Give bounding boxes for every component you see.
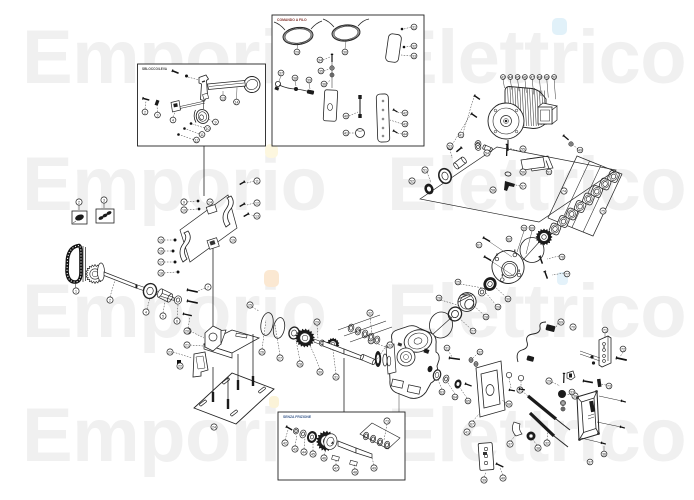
svg-text:49: 49 (372, 466, 376, 470)
svg-text:29: 29 (295, 50, 299, 54)
svg-text:39: 39 (307, 78, 311, 82)
svg-text:48: 48 (353, 470, 357, 474)
svg-text:34: 34 (318, 58, 322, 62)
svg-text:29: 29 (315, 320, 319, 324)
svg-text:75: 75 (601, 209, 605, 213)
svg-text:68: 68 (507, 402, 511, 406)
svg-text:76: 76 (560, 255, 564, 259)
svg-text:26: 26 (437, 296, 441, 300)
svg-text:17: 17 (159, 260, 163, 264)
svg-text:41: 41 (465, 430, 469, 434)
svg-text:2: 2 (144, 110, 146, 114)
svg-text:9: 9 (215, 120, 217, 124)
svg-text:12: 12 (255, 201, 259, 205)
svg-text:62: 62 (507, 237, 511, 241)
svg-text:39: 39 (482, 478, 486, 482)
svg-text:49: 49 (545, 75, 549, 79)
svg-text:61: 61 (477, 243, 481, 247)
svg-text:43: 43 (501, 75, 505, 79)
svg-text:13: 13 (255, 214, 259, 218)
svg-text:47: 47 (334, 466, 338, 470)
svg-text:45: 45 (516, 75, 520, 79)
svg-text:22: 22 (178, 364, 182, 368)
svg-text:25: 25 (248, 303, 252, 307)
svg-text:27: 27 (278, 356, 282, 360)
svg-text:30: 30 (343, 50, 347, 54)
svg-text:32: 32 (412, 44, 416, 48)
svg-text:43: 43 (403, 122, 407, 126)
svg-text:16: 16 (159, 249, 163, 253)
svg-text:37: 37 (588, 460, 592, 464)
svg-text:71: 71 (603, 328, 607, 332)
svg-text:60: 60 (530, 226, 534, 230)
svg-text:2: 2 (78, 200, 80, 204)
svg-text:73: 73 (607, 384, 611, 388)
svg-text:51: 51 (423, 168, 427, 172)
svg-text:Emporio Elettrico: Emporio Elettrico (22, 142, 686, 227)
svg-text:40: 40 (501, 476, 505, 480)
svg-text:25: 25 (456, 280, 460, 284)
svg-text:31: 31 (445, 346, 449, 350)
svg-text:48: 48 (538, 75, 542, 79)
svg-text:54: 54 (485, 151, 489, 155)
svg-text:77: 77 (565, 272, 569, 276)
svg-text:9: 9 (183, 200, 185, 204)
svg-text:35: 35 (319, 69, 323, 73)
svg-text:63: 63 (440, 390, 444, 394)
svg-text:32: 32 (545, 441, 549, 445)
svg-text:59: 59 (522, 226, 526, 230)
svg-text:14: 14 (235, 100, 239, 104)
svg-text:41: 41 (344, 131, 348, 135)
svg-text:4: 4 (145, 310, 147, 314)
svg-text:10: 10 (182, 208, 186, 212)
svg-text:58: 58 (491, 188, 495, 192)
svg-text:21: 21 (185, 343, 189, 347)
svg-text:41: 41 (459, 133, 463, 137)
svg-text:11: 11 (255, 179, 259, 183)
svg-text:32: 32 (478, 350, 482, 354)
svg-text:2: 2 (109, 298, 111, 302)
svg-text:5: 5 (162, 314, 164, 318)
svg-text:26: 26 (260, 350, 264, 354)
svg-text:65: 65 (466, 399, 470, 403)
svg-text:51: 51 (547, 170, 551, 174)
svg-text:72: 72 (621, 347, 625, 351)
svg-text:12: 12 (195, 138, 199, 142)
svg-text:28: 28 (484, 315, 488, 319)
svg-text:3: 3 (157, 113, 159, 117)
svg-text:44: 44 (302, 450, 306, 454)
svg-text:32: 32 (368, 311, 372, 315)
svg-text:15: 15 (159, 238, 163, 242)
svg-text:13: 13 (221, 96, 225, 100)
svg-text:31: 31 (334, 375, 338, 379)
svg-text:33: 33 (388, 343, 392, 347)
svg-text:4: 4 (172, 118, 174, 122)
svg-text:70: 70 (571, 325, 575, 329)
svg-text:52: 52 (410, 179, 414, 183)
svg-text:1: 1 (75, 289, 77, 293)
svg-text:42: 42 (403, 111, 407, 115)
svg-text:14: 14 (208, 200, 212, 204)
svg-text:COMANDO A FILO: COMANDO A FILO (277, 18, 307, 22)
svg-text:11: 11 (200, 133, 204, 137)
svg-text:56: 56 (521, 170, 525, 174)
svg-text:20: 20 (185, 329, 189, 333)
svg-text:28: 28 (298, 362, 302, 366)
svg-text:53: 53 (448, 144, 452, 148)
svg-text:33: 33 (570, 390, 574, 394)
svg-text:46: 46 (322, 456, 326, 460)
svg-text:55: 55 (521, 147, 525, 151)
svg-text:10: 10 (206, 127, 210, 131)
svg-text:49: 49 (578, 148, 582, 152)
svg-text:57: 57 (521, 184, 525, 188)
svg-text:44: 44 (403, 132, 407, 136)
svg-text:18: 18 (159, 271, 163, 275)
svg-text:37: 37 (279, 71, 283, 75)
svg-text:SENZA FRIZIONE: SENZA FRIZIONE (283, 415, 312, 419)
svg-text:SBLOCCO/LEVA: SBLOCCO/LEVA (142, 67, 168, 71)
svg-text:38: 38 (536, 446, 540, 450)
svg-text:45: 45 (311, 452, 315, 456)
svg-text:7: 7 (207, 285, 209, 289)
svg-text:47: 47 (530, 75, 534, 79)
svg-text:3: 3 (103, 198, 105, 202)
svg-text:31: 31 (412, 25, 416, 29)
svg-text:43: 43 (293, 447, 297, 451)
svg-text:36: 36 (602, 452, 606, 456)
svg-text:67: 67 (470, 422, 474, 426)
svg-text:23: 23 (168, 350, 172, 354)
svg-text:30: 30 (506, 297, 510, 301)
svg-text:40: 40 (344, 114, 348, 118)
svg-text:24: 24 (212, 425, 216, 429)
svg-text:37: 37 (508, 442, 512, 446)
svg-text:38: 38 (293, 76, 297, 80)
svg-text:29: 29 (547, 379, 551, 383)
svg-text:33: 33 (412, 54, 416, 58)
svg-text:74: 74 (562, 189, 566, 193)
svg-text:64: 64 (453, 395, 457, 399)
svg-text:30: 30 (318, 370, 322, 374)
svg-text:29: 29 (496, 305, 500, 309)
svg-text:27: 27 (471, 329, 475, 333)
svg-text:69: 69 (559, 320, 563, 324)
svg-text:19: 19 (231, 238, 235, 242)
svg-text:46: 46 (523, 75, 527, 79)
svg-text:6: 6 (176, 319, 178, 323)
svg-text:36: 36 (322, 82, 326, 86)
svg-text:73: 73 (385, 419, 389, 423)
svg-text:44: 44 (508, 75, 512, 79)
svg-text:42: 42 (283, 441, 287, 445)
svg-text:50: 50 (552, 75, 556, 79)
